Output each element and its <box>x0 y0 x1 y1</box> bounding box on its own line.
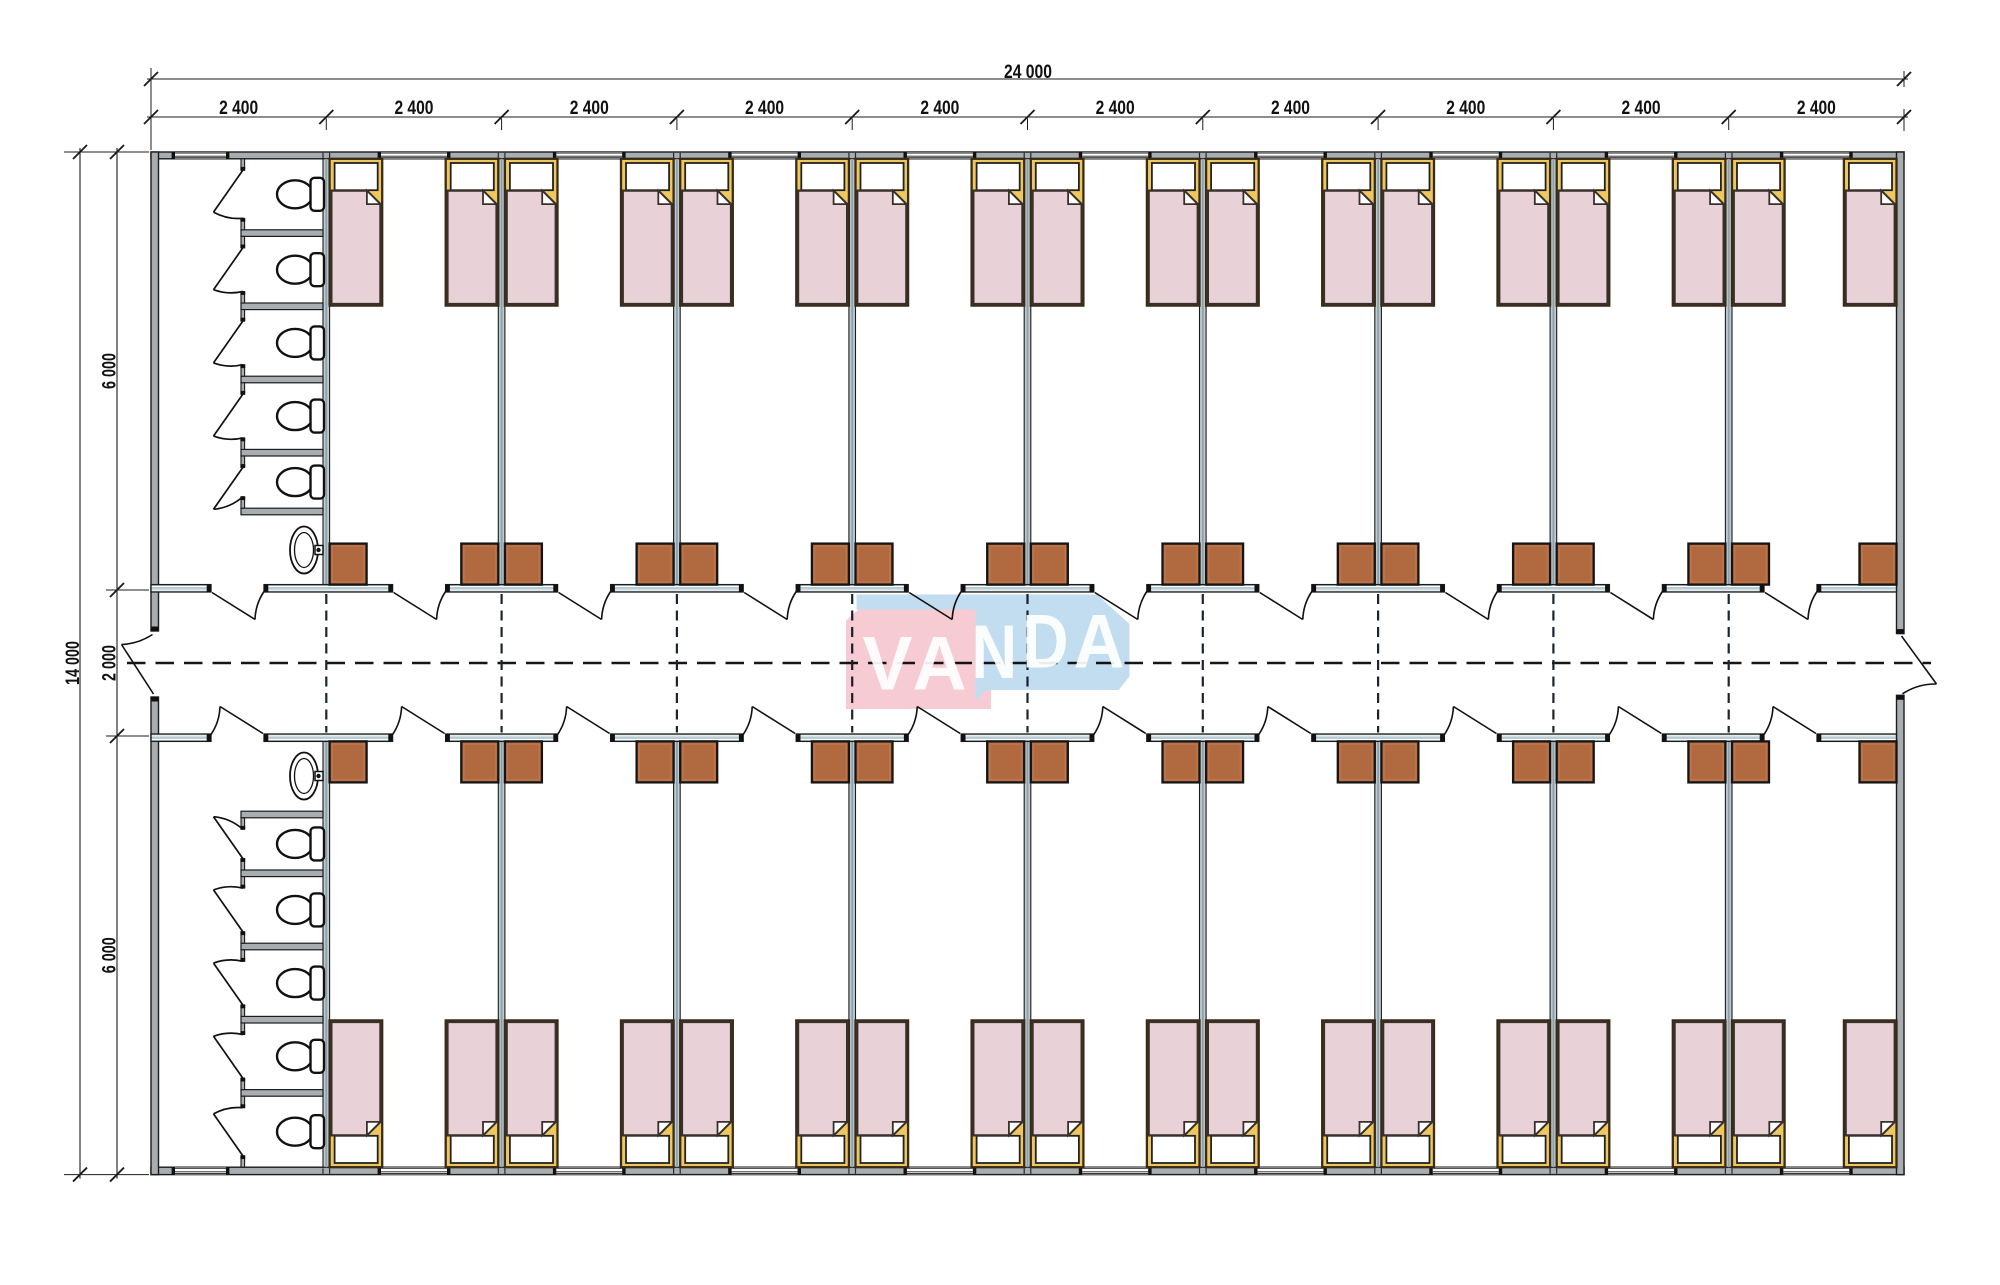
svg-text:2 400: 2 400 <box>1622 97 1661 119</box>
svg-text:2 400: 2 400 <box>1446 97 1485 119</box>
svg-text:V: V <box>863 622 913 707</box>
svg-text:6 000: 6 000 <box>99 937 121 973</box>
svg-text:2 400: 2 400 <box>920 97 959 119</box>
svg-text:A: A <box>1074 600 1125 685</box>
svg-text:2 400: 2 400 <box>219 97 258 119</box>
svg-text:2 400: 2 400 <box>570 97 609 119</box>
svg-text:A: A <box>913 622 967 707</box>
svg-text:2 400: 2 400 <box>1797 97 1836 119</box>
svg-text:2 400: 2 400 <box>1271 97 1310 119</box>
svg-text:D: D <box>1023 600 1069 685</box>
svg-text:2 400: 2 400 <box>745 97 784 119</box>
svg-text:2 000: 2 000 <box>99 645 121 681</box>
svg-text:6 000: 6 000 <box>99 353 121 389</box>
svg-text:N: N <box>972 610 1018 695</box>
svg-text:14 000: 14 000 <box>62 641 84 685</box>
svg-text:24 000: 24 000 <box>1004 61 1052 83</box>
svg-text:2 400: 2 400 <box>1096 97 1135 119</box>
svg-text:2 400: 2 400 <box>394 97 433 119</box>
